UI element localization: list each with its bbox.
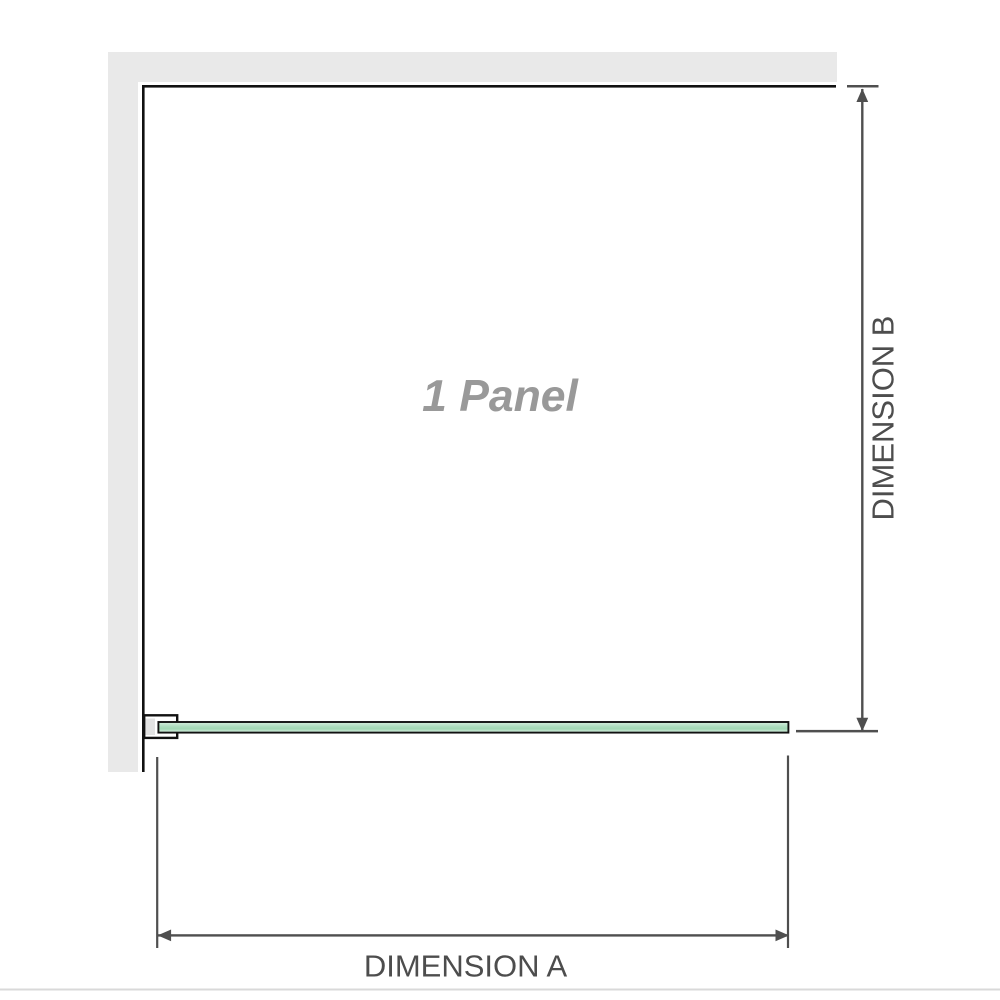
svg-text:DIMENSION A: DIMENSION A	[364, 949, 568, 984]
svg-text:1 Panel: 1 Panel	[422, 372, 579, 421]
svg-text:DIMENSION B: DIMENSION B	[866, 316, 901, 521]
